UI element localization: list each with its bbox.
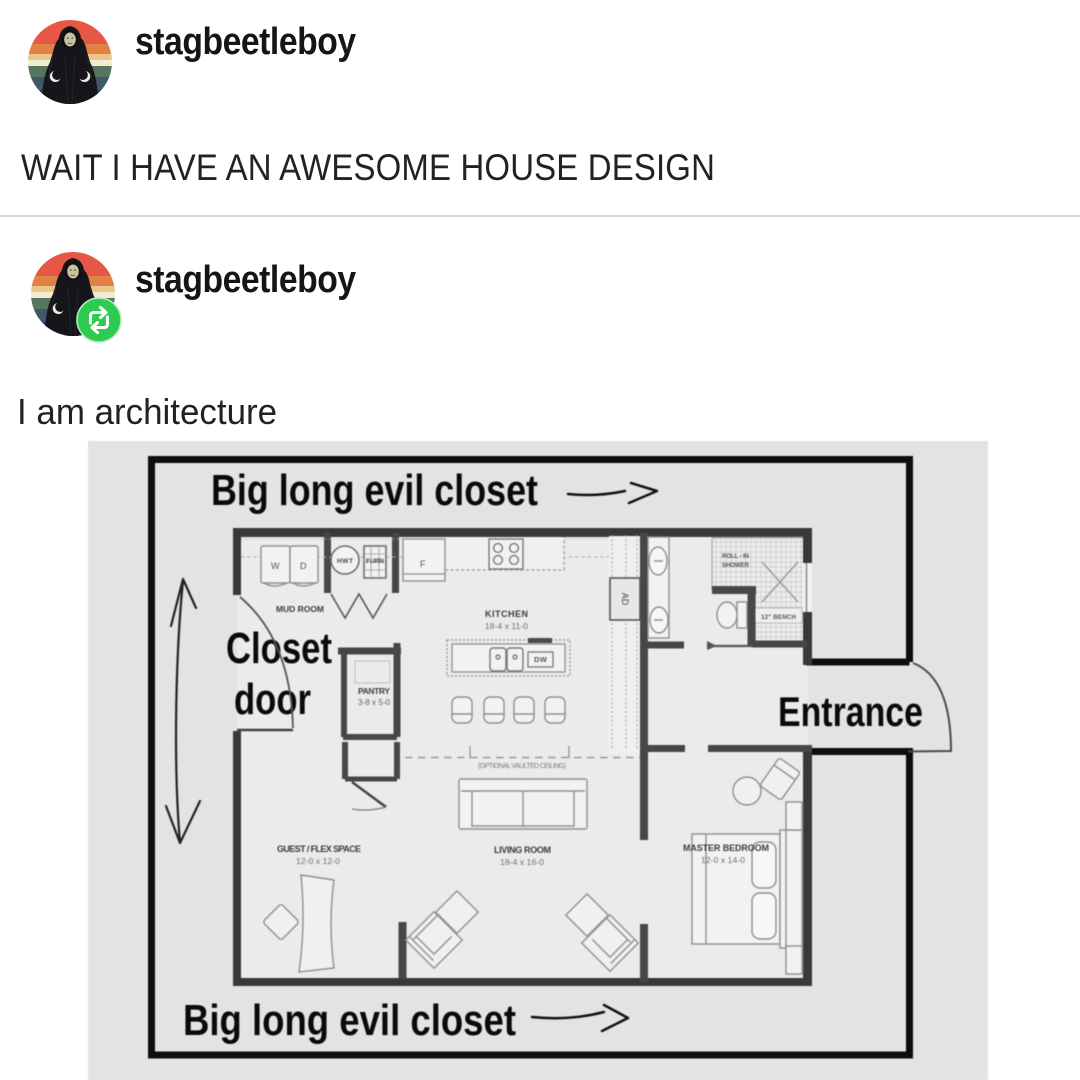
svg-text:SHOWER: SHOWER [722,562,750,569]
svg-text:MASTER BEDROOM: MASTER BEDROOM [683,843,769,853]
svg-text:3-8 x 5-0: 3-8 x 5-0 [358,698,391,707]
svg-text:GUEST / FLEX SPACE: GUEST / FLEX SPACE [277,844,361,854]
svg-text:ROLL - IN: ROLL - IN [722,553,750,560]
svg-text:12-0 x 12-0: 12-0 x 12-0 [296,856,340,866]
svg-text:PANTRY: PANTRY [358,686,390,696]
svg-text:18-4 x 16-0: 18-4 x 16-0 [500,857,544,867]
svg-text:12-0 x 14-0: 12-0 x 14-0 [701,855,745,865]
svg-text:KITCHEN: KITCHEN [485,609,528,619]
svg-text:HWT: HWT [337,558,353,565]
svg-text:12" BENCH: 12" BENCH [761,614,797,621]
svg-text:Closet: Closet [226,624,332,673]
svg-text:door: door [234,675,311,724]
svg-text:Big long evil closet: Big long evil closet [183,996,516,1045]
svg-text:MUD ROOM: MUD ROOM [276,604,324,614]
svg-text:FURN: FURN [366,558,384,565]
svg-text:DW: DW [534,655,548,664]
svg-text:18-4 x 11-0: 18-4 x 11-0 [485,621,528,631]
svg-text:AD: AD [620,593,630,606]
svg-text:D: D [300,561,307,571]
svg-text:F: F [420,559,426,569]
svg-text:W: W [271,561,280,571]
svg-text:Entrance: Entrance [778,688,923,735]
svg-text:(OPTIONAL VAULTED CEILING): (OPTIONAL VAULTED CEILING) [478,763,566,770]
svg-text:Big long evil closet: Big long evil closet [211,466,538,515]
svg-text:LIVING ROOM: LIVING ROOM [494,845,551,855]
